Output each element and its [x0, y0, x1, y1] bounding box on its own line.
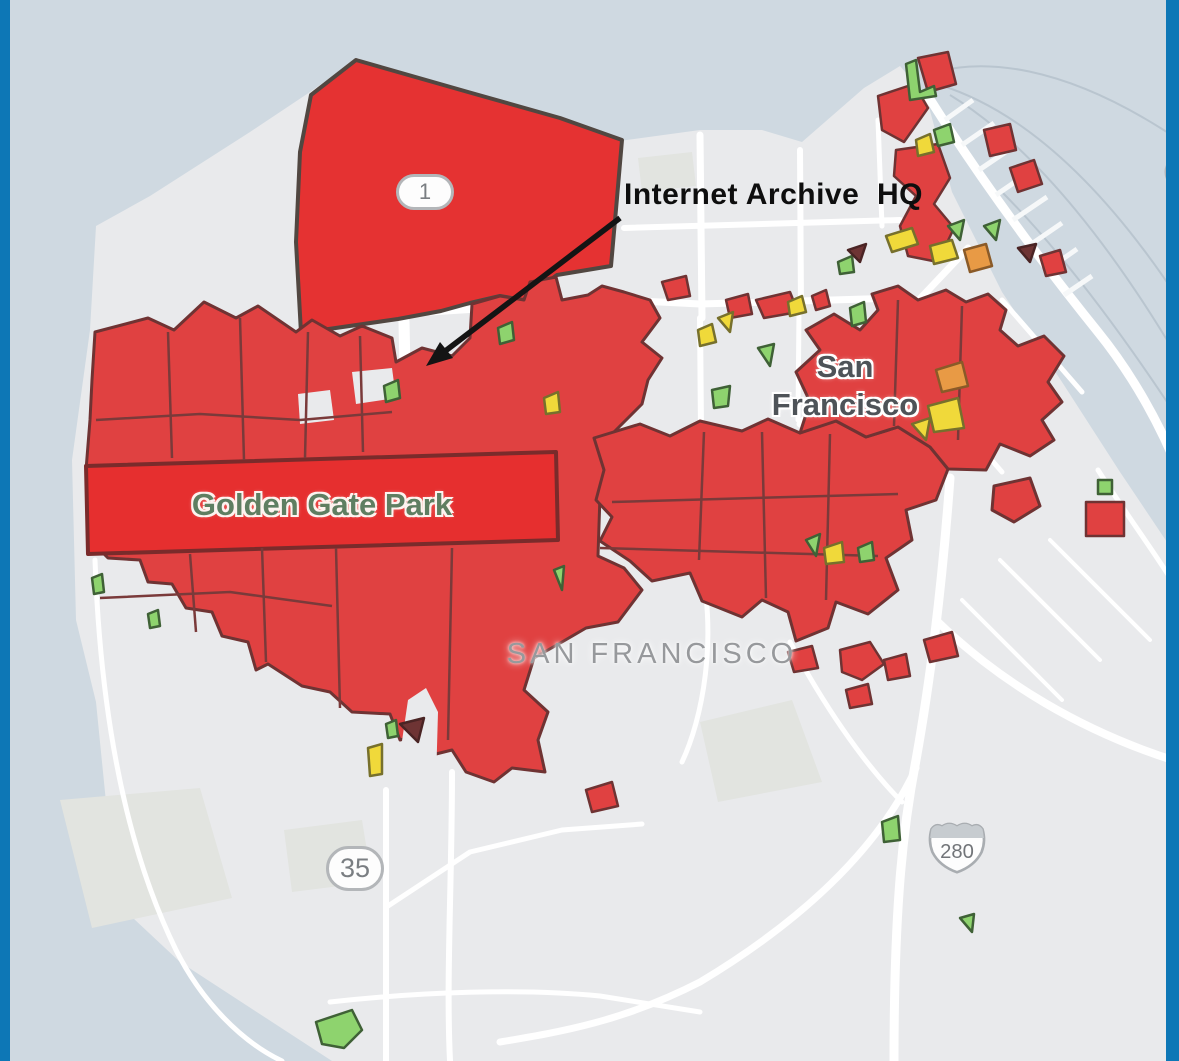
- highway-35-shield-icon: 35: [326, 846, 384, 891]
- highway-35-number: 35: [340, 853, 370, 884]
- zone-red-polygon[interactable]: [586, 782, 618, 812]
- zone-green-polygon[interactable]: [316, 1010, 362, 1048]
- zone-green-polygon[interactable]: [960, 914, 974, 932]
- frame-left-border: [0, 0, 10, 1061]
- zone-red-polygon[interactable]: [984, 124, 1016, 156]
- zone-green-polygon[interactable]: [148, 610, 160, 628]
- highway-1-number: 1: [419, 179, 431, 205]
- zone-central-east-polygon[interactable]: [594, 419, 948, 641]
- internet-archive-hq-annotation: Internet Archive HQ: [624, 178, 923, 212]
- road-nineteenth-s: [449, 772, 452, 1061]
- map-feature-layer: [0, 0, 1179, 1061]
- zone-red-polygon[interactable]: [846, 684, 872, 708]
- zone-red-polygon[interactable]: [924, 632, 958, 662]
- zone-red-polygon[interactable]: [1040, 250, 1066, 276]
- road-pacific-h: [624, 220, 900, 228]
- zone-soma-satellite-polygon[interactable]: [992, 478, 1040, 522]
- city-label-san-francisco: San Francisco: [772, 348, 918, 424]
- zone-yellow-polygon[interactable]: [718, 312, 733, 332]
- zone-yellow-polygon[interactable]: [368, 744, 382, 776]
- road-freeway-280e: [938, 622, 1179, 762]
- zone-red-polygon[interactable]: [1086, 502, 1124, 536]
- zone-orange-polygon[interactable]: [964, 244, 992, 272]
- zone-red-polygon[interactable]: [884, 654, 910, 680]
- road-hwy35-d: [388, 824, 642, 906]
- interstate-280-number: 280: [940, 841, 974, 863]
- zone-green-polygon[interactable]: [1098, 480, 1112, 494]
- zone-green-polygon[interactable]: [386, 720, 398, 738]
- interstate-280-shield-icon: 280: [924, 816, 990, 874]
- road-marina-v2: [800, 150, 801, 310]
- zone-red-polygon[interactable]: [840, 642, 884, 680]
- zone-green-polygon[interactable]: [92, 574, 104, 594]
- zone-yellow-polygon[interactable]: [916, 134, 934, 156]
- zone-green-polygon[interactable]: [882, 816, 900, 842]
- zone-green-polygon[interactable]: [838, 256, 854, 274]
- highway-1-shield-icon: 1: [396, 174, 454, 210]
- road-freeway-101: [894, 478, 950, 1061]
- county-label-san-francisco: SAN FRANCISCO: [507, 638, 797, 671]
- zone-red-polygon[interactable]: [812, 290, 830, 310]
- golden-gate-park-label: Golden Gate Park: [192, 487, 452, 523]
- frame-right-border: [1166, 0, 1179, 1061]
- zone-red-polygon[interactable]: [662, 276, 690, 300]
- zone-green-polygon[interactable]: [850, 302, 866, 326]
- map-canvas[interactable]: Internet Archive HQ San Francisco SAN FR…: [0, 0, 1179, 1061]
- land-patch: [700, 700, 822, 802]
- zone-green-polygon[interactable]: [712, 386, 730, 408]
- road-freeway-sw: [500, 768, 916, 1042]
